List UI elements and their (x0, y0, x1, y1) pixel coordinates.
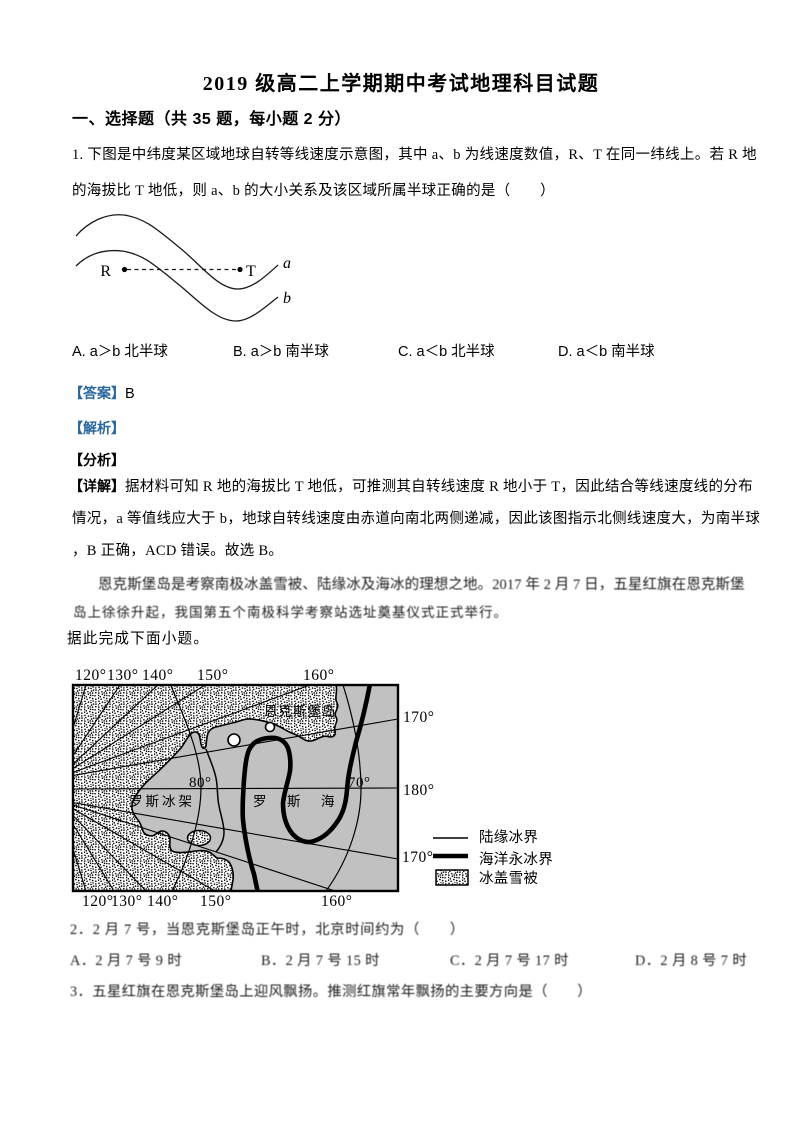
svg-text:70°: 70° (348, 775, 371, 791)
svg-text:150°: 150° (200, 893, 231, 910)
svg-text:130°: 130° (107, 667, 138, 684)
svg-text:120°: 120° (75, 667, 106, 684)
svg-text:恩克斯堡岛: 恩克斯堡岛 (264, 704, 336, 719)
svg-text:140°: 140° (142, 667, 173, 684)
svg-text:180°: 180° (403, 782, 434, 799)
svg-text:T: T (246, 263, 256, 280)
svg-text:170°: 170° (403, 709, 434, 726)
svg-text:a: a (283, 255, 291, 272)
svg-text:170°: 170° (402, 849, 433, 866)
svg-text:150°: 150° (197, 667, 228, 684)
svg-text:R: R (100, 263, 111, 280)
svg-text:80°: 80° (189, 775, 212, 791)
svg-text:140°: 140° (147, 893, 178, 910)
svg-text:130°: 130° (111, 893, 142, 910)
svg-text:罗斯海: 罗斯海 (253, 794, 355, 809)
svg-text:冰盖雪被: 冰盖雪被 (479, 870, 538, 887)
svg-text:160°: 160° (321, 893, 352, 910)
svg-text:120°: 120° (82, 893, 113, 910)
svg-text:罗斯冰架: 罗斯冰架 (129, 794, 195, 809)
svg-text:b: b (283, 290, 291, 307)
svg-text:陆缘冰界: 陆缘冰界 (479, 829, 538, 846)
svg-text:160°: 160° (303, 667, 334, 684)
svg-text:海洋永冰界: 海洋永冰界 (479, 851, 553, 868)
